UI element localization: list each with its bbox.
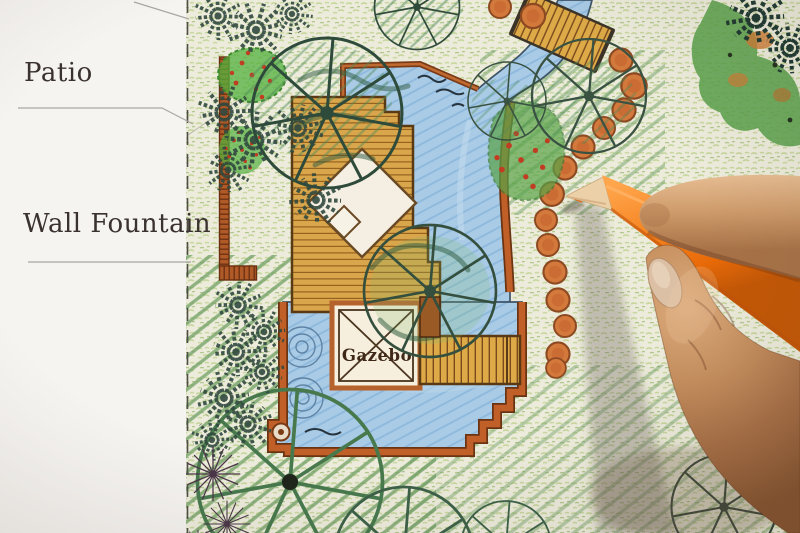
tree-center	[282, 474, 298, 490]
wall-fountain-label: Wall Fountain	[23, 209, 211, 239]
fingertip-shading	[640, 203, 670, 227]
tree-canopy-hatch	[244, 42, 392, 158]
patio-label: Patio	[24, 58, 93, 88]
stepping-stone	[543, 260, 566, 283]
stepping-stone	[489, 0, 511, 18]
stepping-stone	[535, 209, 557, 231]
pond-corner-ornament	[273, 424, 290, 441]
stepping-stone	[554, 315, 576, 337]
stepping-stone	[546, 288, 569, 311]
stepping-stone	[537, 234, 559, 256]
stepping-stone	[521, 4, 545, 28]
photo-of-landscape-plan: Gazebo	[0, 0, 800, 533]
plan-drawing-svg: Gazebo	[0, 0, 800, 533]
stepping-stone	[546, 358, 566, 378]
